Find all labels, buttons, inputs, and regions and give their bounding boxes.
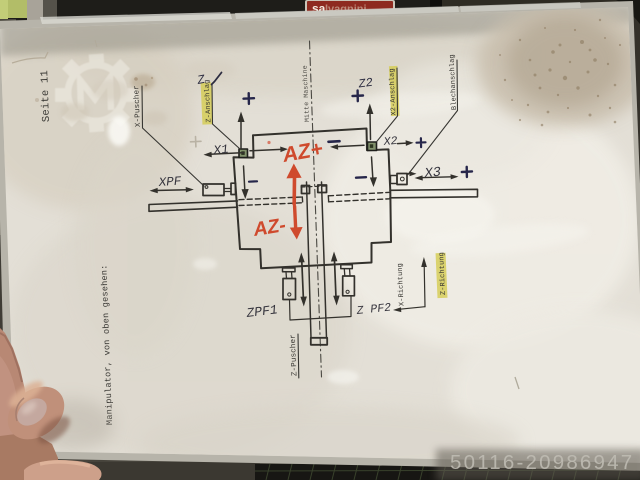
svg-text:XPF: XPF (157, 174, 182, 190)
svg-text:Z2: Z2 (357, 76, 374, 92)
svg-text:X2: X2 (382, 135, 398, 149)
svg-text:Seite 11: Seite 11 (39, 70, 53, 122)
svg-text:X3: X3 (423, 166, 441, 182)
svg-text:50116-20986947: 50116-20986947 (450, 451, 634, 474)
svg-text:X1: X1 (212, 142, 229, 158)
